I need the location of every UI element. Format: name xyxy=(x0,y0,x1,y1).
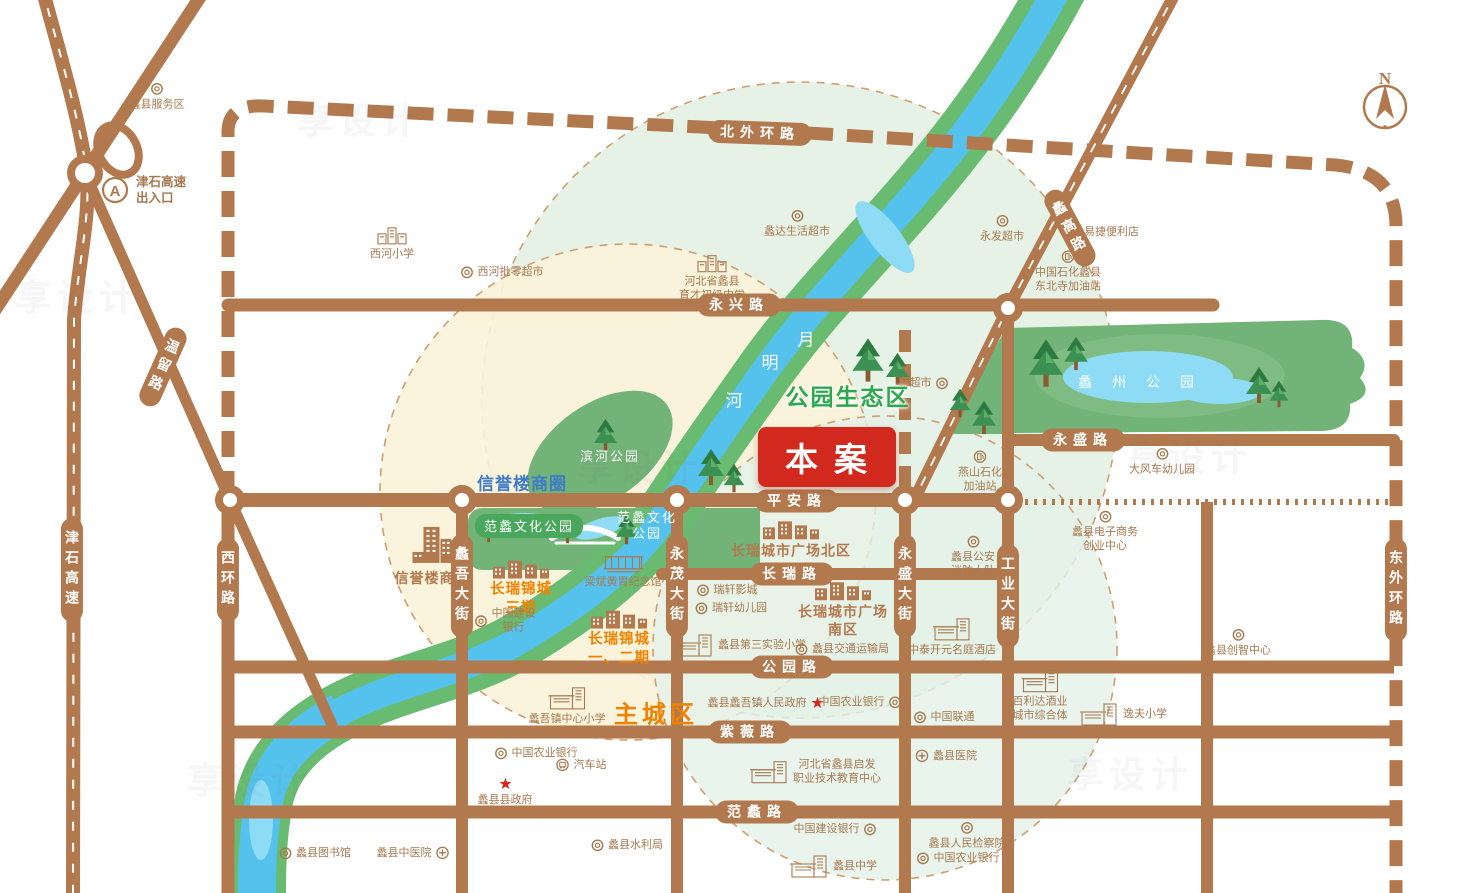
map-poi-label: 蠡县交通运输局 xyxy=(812,642,889,656)
map-poi-label: 永发超市 xyxy=(980,229,1024,243)
location-map: A 北外环路永兴路永盛路平安路长瑞路公园路紫薇路范蠡路津石高速温留路西环路蠡吾大… xyxy=(0,0,1460,893)
star-icon xyxy=(498,777,512,791)
map-poi: 西河批零超市 xyxy=(461,265,544,279)
road-label: 永盛大街 xyxy=(894,534,916,638)
map-poi-label: 蠡县第三实验小学 xyxy=(718,638,806,652)
site-badge: 本案 xyxy=(758,427,896,487)
map-poi: 蠡县水利局 xyxy=(591,838,663,852)
ring-icon xyxy=(1099,510,1112,523)
map-poi: 长瑞城市广场南区 xyxy=(798,581,888,638)
map-poi-label: 津石高速出入口 xyxy=(136,174,186,207)
map-poi: 蠡县医院 xyxy=(915,749,977,763)
ring-icon xyxy=(279,846,292,859)
map-poi-label: 易捷便利店 xyxy=(1084,225,1139,239)
bldg2-icon xyxy=(789,854,829,878)
ring-icon xyxy=(1156,447,1169,460)
bldg2-icon xyxy=(1079,702,1119,726)
hall-icon xyxy=(601,553,645,573)
road-label: 西环路 xyxy=(217,538,239,622)
map-poi: 蠡县创智中心 xyxy=(1205,628,1271,657)
river-name-char: 河 xyxy=(726,387,743,412)
map-poi: 梁斌黄胄纪念馆 xyxy=(585,553,662,589)
map-poi-label: 瑞轩幼儿园 xyxy=(712,601,767,615)
map-poi: 西河小学 xyxy=(370,225,414,261)
map-poi: 蠡县人民检察院 xyxy=(929,821,1006,850)
map-poi: 蠡县交通运输局 xyxy=(795,642,889,656)
ring-icon xyxy=(151,82,164,95)
map-poi-label: 梁斌黄胄纪念馆 xyxy=(585,575,662,589)
bldg2-icon xyxy=(547,686,587,710)
A-icon xyxy=(130,189,132,191)
bldg2-icon xyxy=(1020,669,1060,693)
ring-icon xyxy=(461,265,474,278)
road-label: 永盛路 xyxy=(1041,428,1125,451)
map-poi-label: 瑞轩影城 xyxy=(714,583,758,597)
map-poi: 蠡县中学 xyxy=(789,854,877,878)
map-poi: 中国农业银行 xyxy=(917,851,1000,865)
ring-icon xyxy=(697,583,710,596)
map-poi: 蠡县中医院 xyxy=(377,846,450,860)
map-poi-label: 中国建设银行 xyxy=(492,607,536,636)
map-poi-label: 中国农业银行 xyxy=(819,695,885,709)
road-label: 蠡吾大街 xyxy=(451,534,473,638)
map-poi-label: 长瑞锦城一、二期 xyxy=(588,631,650,669)
compass-icon xyxy=(1364,84,1406,129)
hosp-icon xyxy=(436,846,450,860)
area-label: 公园生态区 xyxy=(786,378,911,412)
compass-north-label: N xyxy=(1379,69,1391,83)
map-poi-label: 长瑞城市广场南区 xyxy=(798,602,888,638)
map-poi: 燕山石化加油站 xyxy=(958,450,1002,495)
map-poi-label: 蠡县县政府 xyxy=(478,793,533,807)
map-poi-label: 逸夫小学 xyxy=(1123,707,1167,721)
road-label: 津石高速 xyxy=(61,518,83,622)
bldg-icon xyxy=(376,225,408,245)
map-poi: 蠡县县政府 xyxy=(478,777,533,807)
ring-icon xyxy=(967,535,980,548)
map-poi: 蠡县第三实验小学 xyxy=(674,633,806,657)
map-poi: 超市 xyxy=(910,376,949,390)
ring-icon xyxy=(475,615,488,628)
area-label: 滨河公园 xyxy=(580,449,640,465)
road-label: 北外环路 xyxy=(708,120,813,147)
ring-icon xyxy=(936,376,949,389)
ring-icon xyxy=(795,642,808,655)
map-poi-label: 汽车站 xyxy=(574,758,607,772)
road-label: 永兴路 xyxy=(697,293,781,316)
area-label: 主城区 xyxy=(614,695,698,730)
bus-icon xyxy=(556,758,570,772)
road-label: 范蠡路 xyxy=(715,800,799,823)
ring-icon xyxy=(791,209,804,222)
bldgrow-icon xyxy=(591,610,647,629)
ring-icon xyxy=(495,746,508,759)
map-poi: 瑞轩影城 xyxy=(697,583,758,597)
map-poi-label: 蠡县公安消防大队 xyxy=(951,550,995,579)
road-label: 平安路 xyxy=(755,489,839,512)
map-poi: 中国建设银行 xyxy=(475,607,536,636)
map-poi-label: 超市 xyxy=(910,376,932,390)
area-label: 蠡 州 公 园 xyxy=(1078,372,1202,392)
bldg2-icon xyxy=(749,760,789,784)
ring-icon xyxy=(864,822,877,835)
map-poi-label: 中泰开元名庭酒店 xyxy=(908,643,996,657)
ring-icon xyxy=(591,838,604,851)
map-poi-label: 燕山石化加油站 xyxy=(958,466,1002,495)
hosp-icon xyxy=(915,749,929,763)
map-poi-label: 蠡县创智中心 xyxy=(1205,643,1271,657)
map-poi: 蠡达生活超市 xyxy=(764,209,830,238)
river-name-char: 月 xyxy=(798,326,815,351)
map-poi: 蠡县服务区 xyxy=(130,82,185,111)
map-poi-label: 蠡县中学 xyxy=(833,859,877,873)
map-poi-label: 蠡县蠡吾镇人民政府 xyxy=(708,696,807,710)
area-label: 范蠡文化公园 xyxy=(475,514,583,538)
map-poi: 中国建设银行 xyxy=(794,822,877,836)
area-label: 信誉楼商圈 xyxy=(477,470,567,495)
ring-icon xyxy=(1232,628,1245,641)
map-poi: 蠡吾镇中心小学 xyxy=(529,686,606,726)
map-poi-label: 中国石化蠡县东北寺加油站 xyxy=(1035,266,1101,295)
ring-icon xyxy=(889,695,902,708)
road-label: 公园路 xyxy=(750,655,834,678)
highway-exit-icon: A xyxy=(103,178,127,202)
map-poi: 蠡县公安消防大队 xyxy=(951,535,995,579)
map-poi: 蠡县电子商务创业中心 xyxy=(1072,510,1138,554)
map-poi-label: 长瑞城市广场北区 xyxy=(731,541,851,559)
map-poi: 中国联通 xyxy=(914,710,975,724)
map-poi: 蠡县蠡吾镇人民政府 xyxy=(708,696,825,710)
map-poi: 津石高速出入口 xyxy=(130,174,186,207)
map-poi-label: 西河小学 xyxy=(370,247,414,261)
river-name-char: 明 xyxy=(762,349,779,374)
bldgrow-icon xyxy=(493,560,549,579)
ring-icon xyxy=(917,851,930,864)
map-poi-label: 蠡县服务区 xyxy=(130,97,185,111)
ring-icon xyxy=(914,710,927,723)
road-label: 东外环路 xyxy=(1385,538,1407,642)
map-poi: 百利达酒业城市综合体 xyxy=(1013,669,1068,724)
ring-icon xyxy=(961,821,974,834)
road-label: 紫薇路 xyxy=(708,720,792,743)
gas-icon xyxy=(973,450,987,464)
tower-icon xyxy=(409,525,455,567)
bldg-icon xyxy=(696,253,728,273)
map-poi-label: 蠡县中医院 xyxy=(377,846,432,860)
map-poi: 逸夫小学 xyxy=(1079,702,1167,726)
map-poi: 汽车站 xyxy=(556,758,607,772)
map-poi-label: 蠡县水利局 xyxy=(608,838,663,852)
bldgrow-icon xyxy=(763,520,819,539)
map-poi-label: 蠡县电子商务创业中心 xyxy=(1072,525,1138,554)
map-poi: 蠡县图书馆 xyxy=(279,846,351,860)
map-poi: 大风车幼儿园 xyxy=(1129,447,1195,476)
map-poi-label: 蠡县人民检察院 xyxy=(929,836,1006,850)
map-poi: 河北省蠡县启发职业技术教育中心 xyxy=(749,758,881,787)
map-poi-label: 蠡县医院 xyxy=(933,749,977,763)
map-poi-label: 百利达酒业城市综合体 xyxy=(1013,695,1068,724)
map-poi-label: 西河批零超市 xyxy=(478,265,544,279)
map-poi-label: 大风车幼儿园 xyxy=(1129,462,1195,476)
map-poi-label: 中国联通 xyxy=(931,710,975,724)
compass-n: N xyxy=(1379,69,1391,89)
map-poi: 永发超市 xyxy=(980,214,1024,243)
road-label: 永茂大街 xyxy=(666,534,688,638)
map-poi: 中泰开元名庭酒店 xyxy=(908,617,996,657)
ring-icon xyxy=(996,214,1009,227)
map-poi-label: 蠡县图书馆 xyxy=(296,846,351,860)
ring-icon xyxy=(695,601,708,614)
map-poi: 长瑞城市广场北区 xyxy=(731,520,851,559)
map-poi-label: 中国农业银行 xyxy=(934,851,1000,865)
map-poi-label: 河北省蠡县启发职业技术教育中心 xyxy=(793,758,881,787)
svg-text:A: A xyxy=(110,183,121,200)
map-poi: 中国农业银行 xyxy=(819,695,902,709)
map-poi: 长瑞锦城一、二期 xyxy=(588,610,650,669)
map-poi-label: 蠡达生活超市 xyxy=(764,224,830,238)
map-poi-label: 中国建设银行 xyxy=(794,822,860,836)
map-poi-label: 蠡吾镇中心小学 xyxy=(529,712,606,726)
road-label: 长瑞路 xyxy=(750,562,834,585)
map-poi: 瑞轩幼儿园 xyxy=(695,601,767,615)
bldg2-icon xyxy=(932,617,972,641)
road-label: 工业大街 xyxy=(997,544,1019,648)
